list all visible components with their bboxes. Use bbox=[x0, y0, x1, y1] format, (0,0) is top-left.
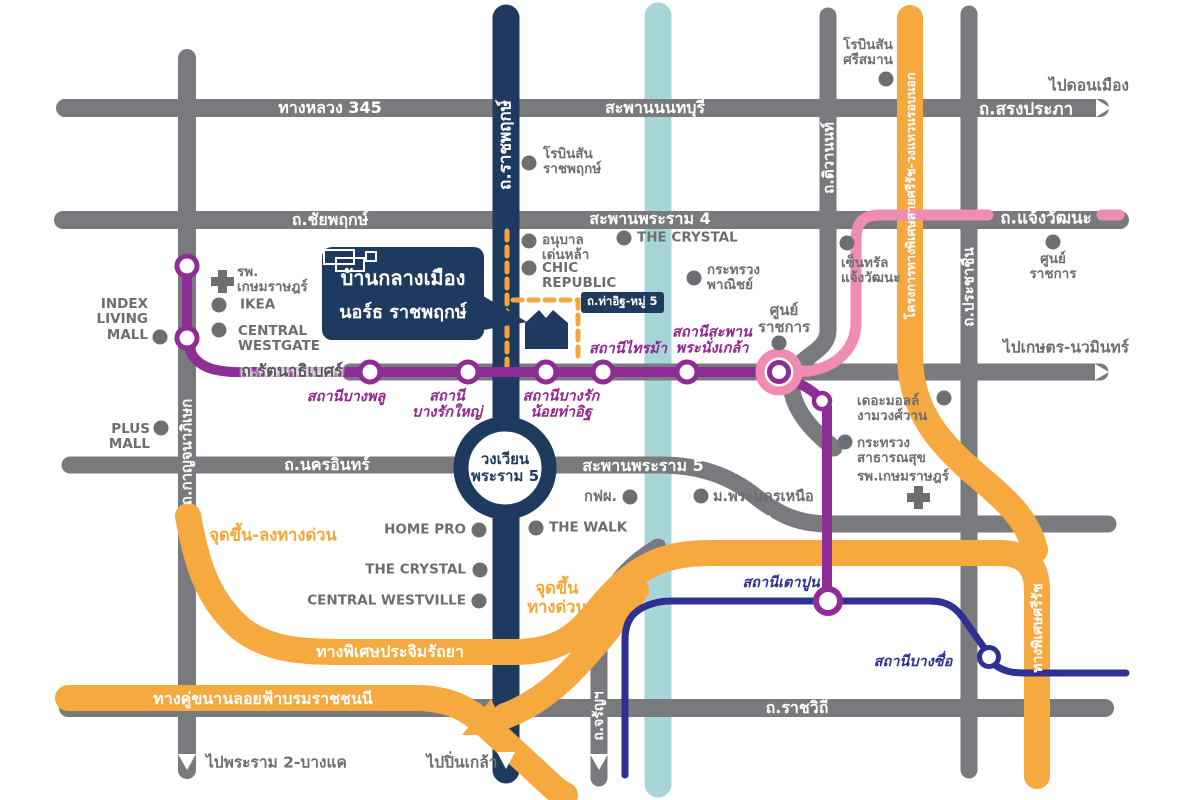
road-label-rattanathibet: ถ.รัตนาธิเบศร์ bbox=[241, 363, 343, 382]
station-bang-sue bbox=[980, 648, 999, 667]
project-subname: นอร์ธ ราชพฤกษ์ bbox=[339, 297, 467, 326]
station-label-bang-rak-noi-tha-it: สถานีบางรัก น้อยท่าอิฐ bbox=[523, 389, 600, 422]
poi-label-central-chaengwattana: เซ็นทรัล แจ้งวัฒนะ bbox=[841, 256, 900, 287]
poi-label-central-westville: CENTRAL WESTVILLE bbox=[307, 593, 466, 608]
road-label-song-prapha: ถ.สรงประภา bbox=[979, 100, 1073, 119]
road-label-prachachuen: ถ.ประชาชื่น bbox=[961, 247, 978, 326]
road-label-ratchaphruek: ถ.ราชพฤกษ์ bbox=[496, 100, 515, 190]
road-label-nakhon-in: ถ.นครอินทร์ bbox=[284, 456, 370, 474]
road-label-highway-345: ทางหลวง 345 bbox=[278, 99, 381, 117]
road-label-charan: ถ.จรัญฯ bbox=[592, 691, 608, 740]
road-label-ratchawithi: ถ.ราชวิถี bbox=[766, 699, 829, 717]
direction-label-phra-ram-2: ไปพระราม 2-บางแค bbox=[206, 754, 347, 772]
poi-label-ministry-public-health: กระทรวง สาธารณสุข bbox=[857, 436, 926, 467]
poi-label-home-pro: HOME PRO bbox=[384, 522, 466, 537]
location-map: บ้านกลางเมือง นอร์ธ ราชพฤกษ์ ถ.ท่าอิฐ-หม… bbox=[0, 0, 1200, 800]
road-label-saphan-nonthaburi: สะพานนนทบุรี bbox=[605, 99, 705, 117]
road-label-outer-ring-expressway: โครงการทางพิเศษสายศรีรัช-วงแหวนรอบนอก bbox=[904, 72, 918, 319]
poi-label-chic-republic: CHIC REPUBLIC bbox=[542, 261, 616, 292]
station-label-bang-phlu: สถานีบางพลู bbox=[307, 389, 386, 405]
station-tao-pun bbox=[816, 589, 840, 613]
station-label-bang-rak-yai: สถานี บางรักใหญ่ bbox=[412, 389, 482, 422]
poi-label-plus-mall: PLUS MALL bbox=[109, 422, 150, 453]
mrt-blue-line bbox=[625, 601, 985, 775]
poi-label-the-walk: THE WALK bbox=[549, 520, 627, 535]
road-label-borommaratchachonnani: ทางคู่ขนานลอยฟ้าบรมราชชนนี bbox=[153, 690, 372, 708]
road-label-si-rat-expressway: ทางพิเศษศรีรัช bbox=[1031, 583, 1047, 672]
poi-label-anuban-denla: อนุบาล เด่นหล้า bbox=[542, 233, 589, 264]
roundabout-label-phra-ram-5: วงเวียน พระราม 5 bbox=[471, 451, 539, 485]
interchange-station-phra-nang-klao bbox=[760, 353, 798, 391]
hospital-cross-west-icon bbox=[211, 270, 234, 293]
poi-label-kasem-hospital-east: รพ.เกษมราษฎร์ bbox=[857, 469, 949, 484]
poi-label-index-living-mall: INDEX LIVING MALL bbox=[97, 297, 148, 343]
project-house-icon bbox=[525, 310, 568, 349]
station-label-phra-nang-klao: สถานีสะพาน พระนั่งเกล้า bbox=[672, 325, 752, 358]
project-callout: บ้านกลางเมือง นอร์ธ ราชพฤกษ์ bbox=[322, 247, 484, 340]
direction-label-pin-klao: ไปปิ่นเกล้า bbox=[427, 754, 498, 772]
project-logo-icon bbox=[322, 247, 378, 273]
road-label-saphan-phra-ram-4: สะพานพระราม 4 bbox=[589, 210, 710, 228]
poi-label-the-mall-ngamwongwan: เดอะมอลล์ งามวงศ์วาน bbox=[857, 394, 927, 425]
poi-label-government-complex-east: ศูนย์ ราชการ bbox=[1030, 252, 1077, 283]
poi-label-kasem-hospital-west: รพ. เกษมราษฎร์ bbox=[237, 265, 308, 296]
hospital-cross-east-icon bbox=[907, 486, 930, 509]
poi-label-ministry-commerce: กระทรวง พาณิชย์ bbox=[707, 263, 760, 294]
mrt-blue-line-east bbox=[995, 665, 1126, 673]
road-label-saphan-phra-ram-5: สะพานพระราม 5 bbox=[582, 457, 703, 475]
poi-label-government-complex-center: ศูนย์ ราชการ bbox=[758, 302, 810, 336]
label-expressway-entry-exit: จุดขึ้น-ลงทางด่วน bbox=[209, 527, 336, 546]
road-label-prachim-ratthaya: ทางพิเศษประจิมรัถยา bbox=[316, 643, 464, 661]
station-label-bang-sue: สถานีบางซื่อ bbox=[874, 654, 953, 670]
poi-label-the-crystal-south: THE CRYSTAL bbox=[365, 562, 466, 577]
poi-label-central-westgate: CENTRAL WESTGATE bbox=[238, 324, 320, 355]
road-label-chaiyaphruek: ถ.ชัยพฤกษ์ bbox=[292, 211, 368, 229]
station-label-tao-pun: สถานีเตาปูน bbox=[742, 575, 819, 591]
poi-label-robinson-srisaman: โรบินสัน ศรีสมาน bbox=[843, 38, 893, 69]
direction-label-kaset-nawamin: ไปเกษตร-นวมินทร์ bbox=[1003, 339, 1129, 357]
road-badge-tha-it: ถ.ท่าอิฐ-หมู่ 5 bbox=[581, 292, 664, 313]
road-label-tiwanon: ถ.ติวานนท์ bbox=[821, 122, 838, 194]
poi-label-robinson-ratchaphruek: โรบินสัน ราชพฤกษ์ bbox=[543, 147, 601, 178]
direction-label-don-mueang: ไปดอนเมือง bbox=[1049, 77, 1129, 95]
poi-label-ikea: IKEA bbox=[240, 297, 275, 312]
poi-label-kmutnb: ม.พระนครเหนือ bbox=[713, 489, 814, 505]
poi-label-the-crystal-north: THE CRYSTAL bbox=[637, 230, 738, 245]
poi-label-egat: กฟผ. bbox=[584, 489, 617, 505]
label-expressway-entry: จุดขึ้น ทางด่วน bbox=[527, 579, 586, 616]
road-label-chaengwattana: ถ.แจ้งวัฒนะ bbox=[1000, 209, 1092, 228]
road-label-kanchanaphisek: ถ.กาญจนาภิเษก bbox=[179, 399, 196, 506]
station-label-sai-ma: สถานีไทรม้า bbox=[589, 341, 667, 357]
